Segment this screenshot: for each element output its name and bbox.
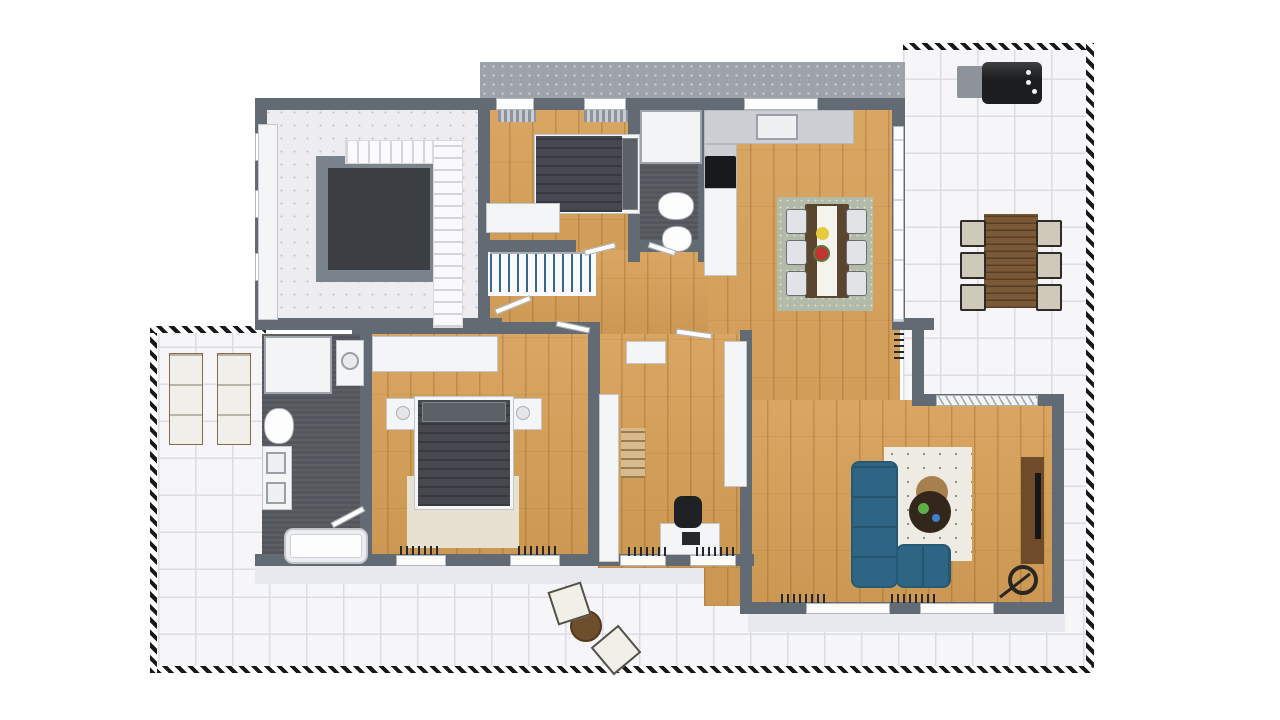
office-wardrobe-right xyxy=(724,341,747,487)
stairs-side-flight xyxy=(433,140,463,328)
office-ladder-shelf xyxy=(621,428,645,478)
window-living-a xyxy=(806,603,890,614)
window-office-b xyxy=(690,555,736,566)
office-laptop xyxy=(682,532,700,545)
sofa-main xyxy=(851,461,898,588)
curtain-bedroom2-a xyxy=(498,110,536,122)
stairs-upper-flight xyxy=(345,140,433,164)
coffee-table-bowl-blue xyxy=(932,514,940,522)
closet2-hangers xyxy=(490,252,594,292)
window-bedroom2-b xyxy=(584,98,626,110)
dining-flowers xyxy=(813,245,830,262)
office-wardrobe-left xyxy=(599,394,619,562)
sun-lounger-a xyxy=(169,353,203,445)
plinth-south xyxy=(255,566,754,584)
outdoor-chair-l3 xyxy=(960,284,986,311)
bbq-grill-shelf xyxy=(957,66,983,98)
toilet2 xyxy=(658,192,694,220)
sofa-chaise xyxy=(896,544,951,588)
railing-right xyxy=(1086,43,1094,673)
window-bedroom1-b xyxy=(510,555,560,566)
window-bedroom2-a xyxy=(496,98,534,110)
bedroom1-wardrobe xyxy=(372,336,498,372)
glass-wall-right xyxy=(893,126,904,322)
lamp-left xyxy=(396,406,410,420)
coffee-table-bowl-green xyxy=(918,503,929,514)
bbq-knob-b xyxy=(1026,80,1031,85)
shower1-tray xyxy=(264,336,332,394)
tv-screen xyxy=(1035,473,1041,539)
vanity1-sink-b xyxy=(266,482,286,504)
dresser-bedroom2 xyxy=(486,203,560,233)
bed2-pillows xyxy=(622,138,638,210)
window-bedroom1-a xyxy=(396,555,446,566)
bbq-knob-c xyxy=(1032,89,1037,94)
outdoor-chair-r1 xyxy=(1036,220,1062,247)
kitchen-sink xyxy=(756,114,798,140)
radiator-living-a xyxy=(781,594,827,603)
lamp-right xyxy=(516,406,530,420)
window-living-b xyxy=(920,603,994,614)
dining-chair-l2 xyxy=(786,240,807,265)
radiator-bedroom1-b xyxy=(518,546,558,555)
outdoor-chair-l1 xyxy=(960,220,986,247)
outdoor-chair-r2 xyxy=(1036,252,1062,279)
bbq-knob-a xyxy=(1026,70,1031,75)
window-office-a xyxy=(620,555,666,566)
radiator-living-b xyxy=(891,594,935,603)
wall-step-v xyxy=(912,318,924,406)
sliding-door-living xyxy=(936,395,1038,406)
railing-top-left xyxy=(150,326,266,333)
stair-void xyxy=(328,168,430,270)
bbq-grill-body xyxy=(982,62,1042,104)
bathtub xyxy=(284,528,368,564)
vanity1-sink-a xyxy=(266,452,286,474)
wall-closet-divider-a xyxy=(486,240,576,252)
radiator-office-a xyxy=(628,547,668,556)
dining-chair-r1 xyxy=(846,209,867,234)
floor-plan-canvas xyxy=(0,0,1280,720)
outdoor-table xyxy=(984,214,1038,308)
office-chair xyxy=(674,496,702,528)
radiator-office-b xyxy=(696,547,736,556)
kitchen-cabinet-low xyxy=(704,188,737,276)
shower2-tray xyxy=(640,110,702,164)
dining-plate xyxy=(816,227,829,240)
dining-chair-r2 xyxy=(846,240,867,265)
washing-machine-door xyxy=(341,352,359,370)
curtain-bedroom2-b xyxy=(584,110,628,122)
wall-living-bottom xyxy=(740,602,1064,614)
dining-chair-r3 xyxy=(846,271,867,296)
bed2-mattress xyxy=(536,136,622,212)
railing-bottom xyxy=(156,666,1093,673)
railing-left xyxy=(150,328,157,673)
coffee-table-dark xyxy=(909,491,951,533)
radiator-step xyxy=(894,331,904,359)
dining-chair-l1 xyxy=(786,209,807,234)
sun-lounger-b xyxy=(217,353,251,445)
dining-chair-l3 xyxy=(786,271,807,296)
wall-living-right xyxy=(1052,394,1064,614)
railing-top-right xyxy=(903,43,1091,50)
toilet1 xyxy=(264,408,294,444)
window-kitchen xyxy=(744,98,818,110)
radiator-bedroom1-a xyxy=(400,546,442,555)
wall-entry-top xyxy=(255,98,490,110)
outdoor-chair-r3 xyxy=(1036,284,1062,311)
office-shelf-top xyxy=(626,341,666,364)
entry-closet xyxy=(258,124,278,320)
outdoor-chair-l2 xyxy=(960,252,986,279)
bed1-pillows xyxy=(422,402,506,422)
plinth-living-south xyxy=(748,614,1065,632)
wall-top xyxy=(480,98,905,110)
cooktop xyxy=(705,156,736,190)
